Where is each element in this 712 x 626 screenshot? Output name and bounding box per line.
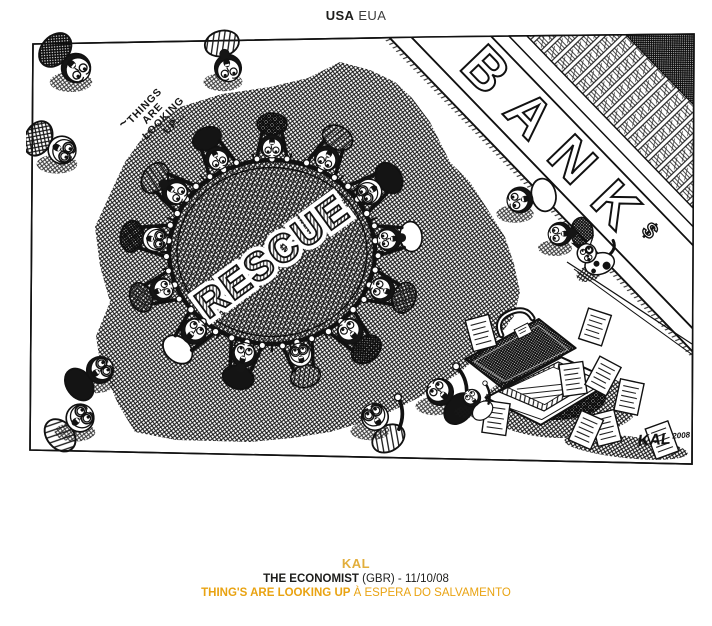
publication-name: THE ECONOMIST [263,573,359,585]
publication-detail: (GBR) - 11/10/08 [362,573,449,585]
signature-year: 2008 [671,430,691,440]
cartoon-subtitle: À ESPERA DO SALVAMENTO [354,587,511,599]
header-country-primary: USA [326,8,355,23]
scattered-paper [559,361,587,396]
header-country-secondary: EUA [358,8,386,23]
cartoon-title-line: THING'S ARE LOOKING UP À ESPERA DO SALVA… [0,587,712,601]
cartoon-drawing: BANK $ RESCUE RESCUE [26,26,706,478]
page: USAEUA [0,0,712,626]
cartoon-image: BANK $ RESCUE RESCUE [26,26,706,478]
cartoon-author-link[interactable]: KAL [0,556,712,572]
cartoon-title[interactable]: THING'S ARE LOOKING UP [201,587,350,599]
header: USAEUA [0,8,712,23]
credits: KAL THE ECONOMIST (GBR) - 11/10/08 THING… [0,556,712,601]
publication-line: THE ECONOMIST (GBR) - 11/10/08 [0,573,712,587]
signature-name: KAL [637,431,671,450]
